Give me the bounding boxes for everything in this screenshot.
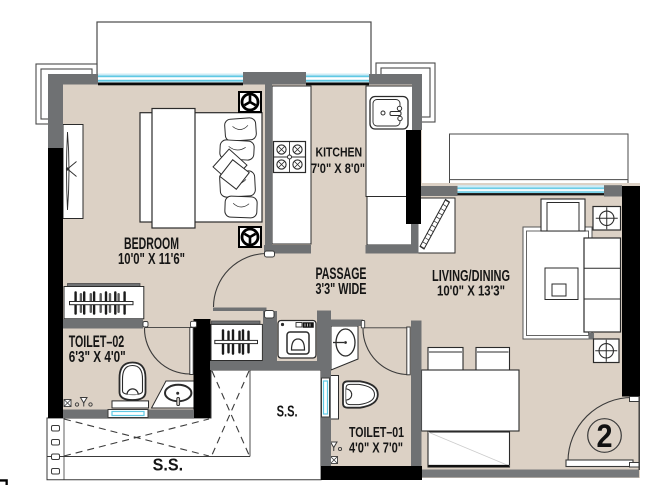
svg-text:6'3" X 4'0": 6'3" X 4'0" — [69, 349, 126, 366]
svg-text:3'3" WIDE: 3'3" WIDE — [316, 281, 367, 298]
svg-text:TOILET–01: TOILET–01 — [349, 424, 404, 441]
svg-text:7'0" X 8'0": 7'0" X 8'0" — [311, 161, 365, 176]
svg-text:4'0" X 7'0": 4'0" X 7'0" — [349, 441, 403, 457]
svg-text:10'0" X 13'3": 10'0" X 13'3" — [437, 283, 505, 300]
svg-text:KITCHEN: KITCHEN — [316, 145, 363, 160]
svg-text:S.S.: S.S. — [153, 454, 184, 474]
svg-text:S.S.: S.S. — [277, 403, 298, 420]
svg-text:10'0" X 11'6": 10'0" X 11'6" — [118, 251, 185, 268]
svg-text:2: 2 — [597, 418, 613, 454]
